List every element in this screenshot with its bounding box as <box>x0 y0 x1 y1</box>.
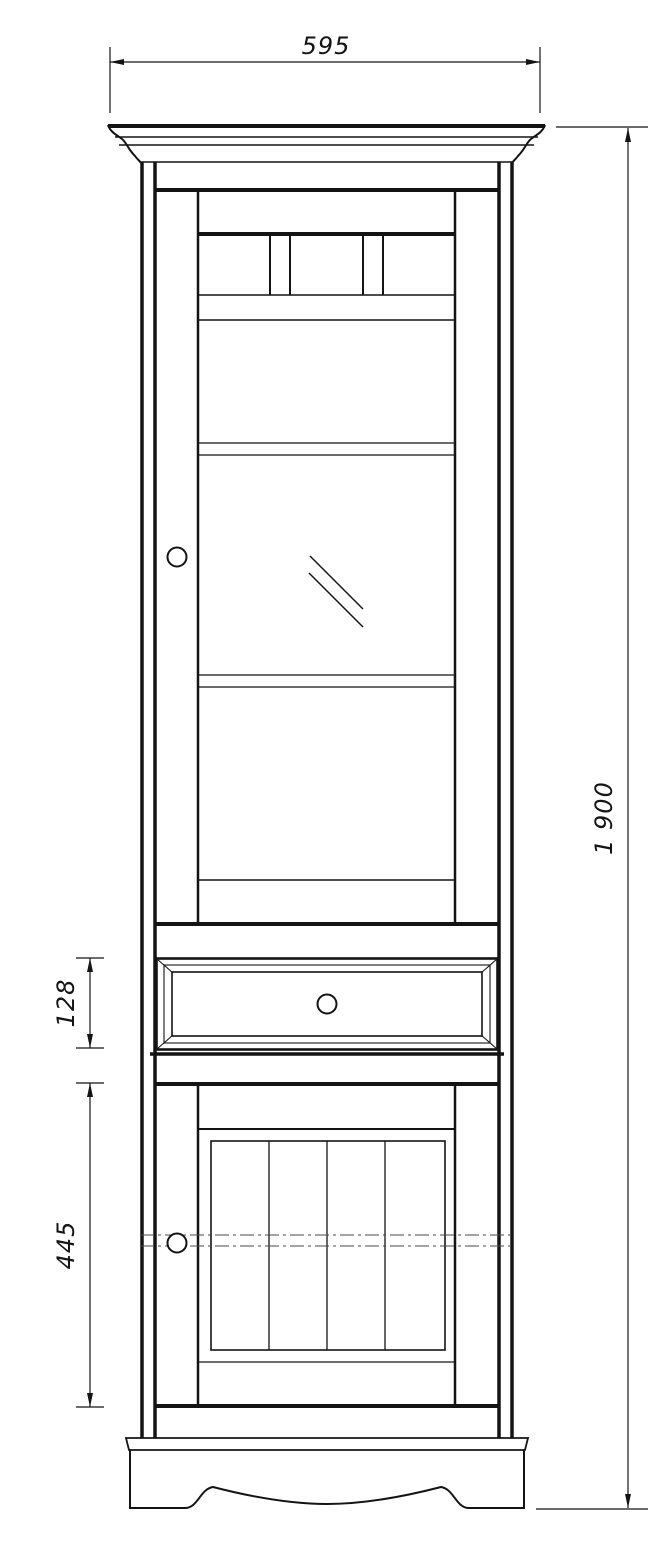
arrowhead-right <box>526 59 540 65</box>
top-width-dimension: 595 <box>110 32 540 113</box>
dim-label-drawer-height: 128 <box>52 979 80 1028</box>
lower-door-knob <box>168 1234 187 1253</box>
arrowhead-down <box>87 1034 93 1048</box>
drawer-height-dimension: 128 <box>52 958 104 1048</box>
glass-shelf-lines <box>198 443 455 687</box>
arrowhead-up <box>87 958 93 972</box>
arrowhead-left <box>110 59 124 65</box>
arrowhead-down <box>87 1393 93 1407</box>
dim-label-overall-width: 595 <box>302 32 351 60</box>
lower-door-height-dimension: 445 <box>52 1083 104 1407</box>
arrowhead-up <box>87 1083 93 1097</box>
glass-door-knob <box>168 548 187 567</box>
lower-door <box>140 1084 512 1406</box>
overall-height-dimension: 1 900 <box>536 127 648 1509</box>
glass-door-frieze <box>198 235 455 320</box>
cornice-left-profile <box>108 125 141 163</box>
dim-label-overall-height: 1 900 <box>590 781 618 855</box>
dim-label-lower-door-height: 445 <box>52 1221 80 1270</box>
cabinet-technical-drawing: 595 1 900 128 445 <box>0 0 668 1556</box>
drawing-sheet: 595 1 900 128 445 <box>0 0 668 1556</box>
glass-door <box>155 192 499 924</box>
cornice-right-profile <box>512 125 545 163</box>
plinth-body-with-valance <box>130 1450 524 1508</box>
base-molding-strip <box>126 1438 528 1450</box>
glass-reflection <box>309 556 363 627</box>
plinth <box>126 1438 528 1508</box>
drawer <box>157 959 498 1050</box>
cornice <box>108 125 545 163</box>
drawer-front-bevel-line <box>164 965 490 1043</box>
arrowhead-up <box>625 128 631 142</box>
drawer-knob <box>318 995 337 1014</box>
drawer-front-inner-panel <box>172 972 482 1036</box>
arrowhead-down <box>625 1494 631 1508</box>
